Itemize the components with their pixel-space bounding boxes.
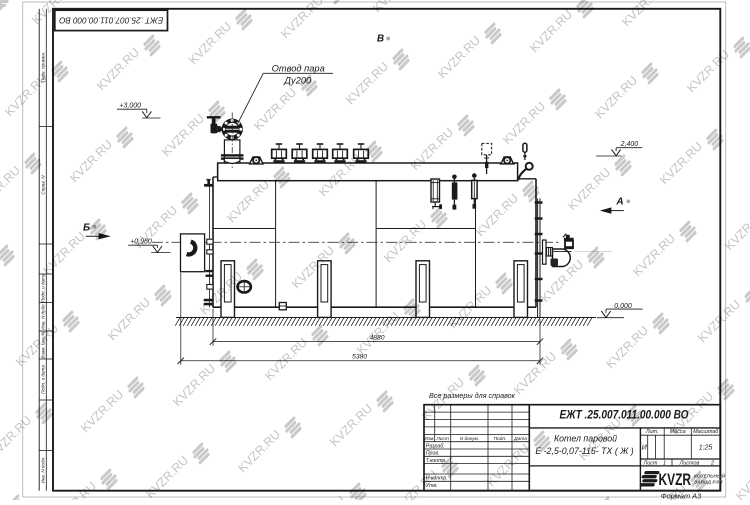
- svg-text:Изм.: Изм.: [424, 436, 434, 442]
- svg-text:Справ. N: Справ. N: [41, 175, 46, 195]
- svg-text:Б: Б: [83, 223, 90, 234]
- svg-text:2,400: 2,400: [620, 141, 639, 148]
- svg-text:А: А: [615, 197, 623, 208]
- svg-text:N докум.: N докум.: [460, 436, 479, 442]
- svg-text:ЕЖТ .25.007.011.00.000 ВО: ЕЖТ .25.007.011.00.000 ВО: [560, 409, 689, 421]
- svg-text:Инв. N дубл.: Инв. N дубл.: [41, 303, 46, 330]
- svg-text:Лист: Лист: [643, 461, 658, 467]
- svg-text:Подп.: Подп.: [494, 436, 507, 442]
- svg-text:1:25: 1:25: [699, 445, 713, 452]
- svg-text:ЕЖТ .25.007.011.00.000 ВО: ЕЖТ .25.007.011.00.000 ВО: [59, 16, 164, 25]
- svg-text:Лит.: Лит.: [645, 429, 659, 435]
- svg-text:Т.контр.: Т.контр.: [426, 458, 447, 464]
- svg-text:Подп. и дата: Подп. и дата: [41, 273, 46, 302]
- svg-text:2: 2: [710, 461, 714, 467]
- svg-text:+3,000: +3,000: [119, 103, 141, 110]
- svg-text:Разраб.: Разраб.: [426, 443, 445, 449]
- svg-text:Подп. и дата: Подп. и дата: [41, 365, 46, 394]
- svg-text:1: 1: [663, 461, 666, 467]
- svg-text:Отвод пара: Отвод пара: [272, 63, 325, 73]
- svg-text:Лист: Лист: [436, 436, 449, 442]
- svg-text:Инв. N подл.: Инв. N подл.: [41, 457, 46, 484]
- svg-text:Листов: Листов: [679, 461, 700, 467]
- svg-text:Пров.: Пров.: [426, 451, 440, 457]
- svg-text:В: В: [377, 34, 384, 45]
- svg-text:Дата: Дата: [513, 436, 527, 442]
- svg-text:Масштаб: Масштаб: [693, 429, 719, 435]
